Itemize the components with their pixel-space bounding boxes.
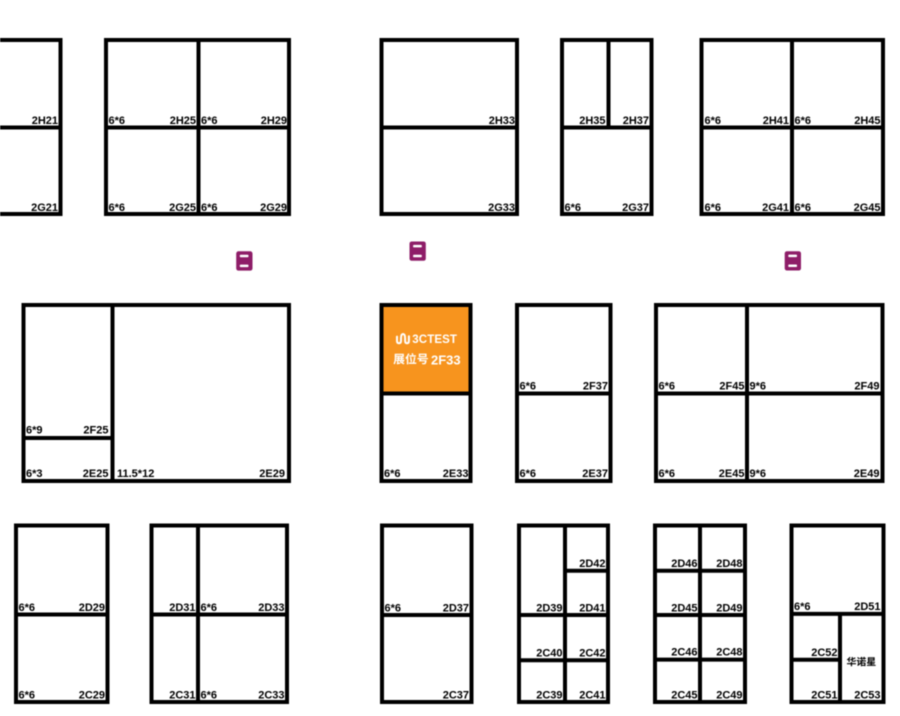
svg-text:11.5*12: 11.5*12 <box>117 468 154 480</box>
svg-text:2G33: 2G33 <box>488 202 515 214</box>
svg-text:6*6: 6*6 <box>109 115 126 127</box>
svg-text:2C40: 2C40 <box>536 648 562 660</box>
svg-text:6*6: 6*6 <box>201 202 218 214</box>
svg-text:2E45: 2E45 <box>719 468 745 480</box>
svg-text:2F49: 2F49 <box>854 381 879 393</box>
svg-text:2C48: 2C48 <box>716 647 742 659</box>
svg-text:2F37: 2F37 <box>583 381 608 393</box>
svg-text:6*6: 6*6 <box>19 690 36 702</box>
svg-text:2D41: 2D41 <box>579 603 605 615</box>
svg-text:2G21: 2G21 <box>31 202 58 214</box>
svg-text:2D31: 2D31 <box>169 602 195 614</box>
svg-text:2D39: 2D39 <box>536 603 562 615</box>
svg-text:2E29: 2E29 <box>259 468 285 480</box>
svg-text:2G37: 2G37 <box>622 202 649 214</box>
svg-text:6*6: 6*6 <box>385 603 402 615</box>
svg-text:6*6: 6*6 <box>705 202 722 214</box>
svg-text:2D51: 2D51 <box>854 601 880 613</box>
svg-text:2H37: 2H37 <box>623 115 649 127</box>
svg-text:2D37: 2D37 <box>443 603 469 615</box>
svg-text:2C39: 2C39 <box>536 690 562 702</box>
svg-text:6*3: 6*3 <box>26 468 43 480</box>
svg-text:2H35: 2H35 <box>579 115 605 127</box>
svg-text:2C42: 2C42 <box>579 648 605 660</box>
svg-text:2H45: 2H45 <box>854 115 880 127</box>
svg-text:2E25: 2E25 <box>83 468 109 480</box>
svg-text:6*6: 6*6 <box>705 115 722 127</box>
svg-text:2C31: 2C31 <box>169 690 195 702</box>
svg-text:2F25: 2F25 <box>83 425 108 437</box>
svg-text:2H41: 2H41 <box>763 115 789 127</box>
svg-text:6*6: 6*6 <box>795 115 812 127</box>
svg-text:6*6: 6*6 <box>659 468 676 480</box>
svg-text:2G25: 2G25 <box>169 202 196 214</box>
svg-text:6*6: 6*6 <box>565 202 582 214</box>
svg-text:6*6: 6*6 <box>384 468 401 480</box>
svg-text:2G29: 2G29 <box>260 202 287 214</box>
svg-text:9*6: 9*6 <box>750 468 767 480</box>
svg-text:2G41: 2G41 <box>762 202 789 214</box>
svg-text:2C49: 2C49 <box>716 690 742 702</box>
svg-text:2E37: 2E37 <box>582 468 608 480</box>
svg-text:2C51: 2C51 <box>811 690 837 702</box>
svg-text:6*6: 6*6 <box>794 601 811 613</box>
svg-text:6*6: 6*6 <box>201 690 218 702</box>
svg-text:2H29: 2H29 <box>261 115 287 127</box>
svg-text:6*6: 6*6 <box>201 115 218 127</box>
svg-text:2C33: 2C33 <box>258 690 284 702</box>
svg-text:6*6: 6*6 <box>659 381 676 393</box>
svg-text:6*6: 6*6 <box>795 202 812 214</box>
svg-text:2D45: 2D45 <box>671 603 697 615</box>
svg-text:6*9: 6*9 <box>26 425 43 437</box>
svg-text:2G45: 2G45 <box>854 202 881 214</box>
svg-text:2D46: 2D46 <box>671 558 697 570</box>
svg-text:6*6: 6*6 <box>19 602 36 614</box>
svg-text:3CTEST: 3CTEST <box>412 334 457 346</box>
svg-text:2D33: 2D33 <box>258 602 284 614</box>
svg-text:9*6: 9*6 <box>750 381 767 393</box>
svg-text:2C37: 2C37 <box>443 690 469 702</box>
svg-text:2D42: 2D42 <box>579 558 605 570</box>
svg-text:2F45: 2F45 <box>719 381 744 393</box>
svg-text:2E49: 2E49 <box>854 468 880 480</box>
svg-text:2D29: 2D29 <box>79 602 105 614</box>
svg-text:6*6: 6*6 <box>520 381 537 393</box>
svg-text:6*6: 6*6 <box>201 602 218 614</box>
svg-text:2D49: 2D49 <box>716 603 742 615</box>
svg-text:2H25: 2H25 <box>170 115 196 127</box>
svg-text:2F33: 2F33 <box>431 353 461 368</box>
svg-text:2C29: 2C29 <box>79 690 105 702</box>
svg-text:2E33: 2E33 <box>443 468 469 480</box>
svg-text:2H21: 2H21 <box>32 115 58 127</box>
svg-text:2C52: 2C52 <box>811 647 837 659</box>
svg-text:2H33: 2H33 <box>489 115 515 127</box>
svg-text:6*6: 6*6 <box>109 202 126 214</box>
svg-text:2C53: 2C53 <box>854 690 880 702</box>
svg-text:2C46: 2C46 <box>671 647 697 659</box>
svg-text:6*6: 6*6 <box>520 468 537 480</box>
svg-text:2D48: 2D48 <box>716 558 742 570</box>
svg-text:2C45: 2C45 <box>671 690 697 702</box>
svg-text:2C41: 2C41 <box>579 690 605 702</box>
